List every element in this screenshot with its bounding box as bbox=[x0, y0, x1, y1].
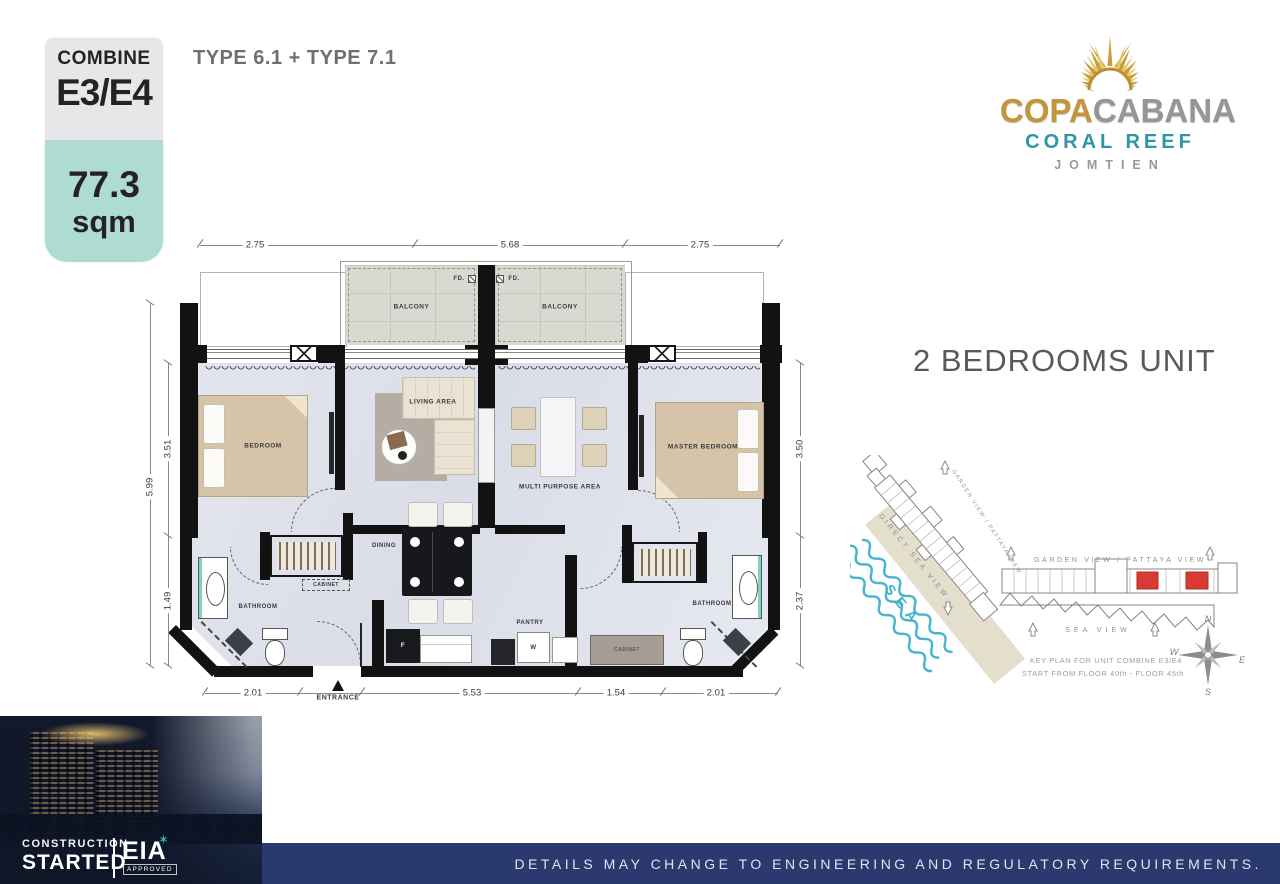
wall-bedroom-living bbox=[335, 363, 345, 490]
party-wall-lower bbox=[478, 483, 495, 528]
wall-left-lower bbox=[180, 538, 192, 630]
compass-n: N bbox=[1205, 614, 1212, 624]
balcony-right-label: BALCONY bbox=[542, 303, 578, 310]
dining-label: DINING bbox=[372, 543, 396, 549]
key-plan: SEA DIRECT SEA VIEW bbox=[850, 455, 1270, 705]
project-logo: COPACABANA CORAL REEF JOMTIEN bbox=[1000, 34, 1220, 172]
combine-label: COMBINE bbox=[45, 48, 163, 70]
wall-top-2 bbox=[318, 345, 345, 363]
party-wall-column bbox=[478, 408, 495, 483]
cabinet-right-box: CABINET bbox=[590, 635, 664, 665]
fd-left-label: FD. bbox=[453, 276, 464, 282]
toilet-tank-right bbox=[680, 628, 706, 640]
slider-multipurpose bbox=[495, 349, 625, 359]
fd-right-shaft bbox=[496, 275, 504, 283]
column-left bbox=[290, 345, 318, 362]
coffee-decor bbox=[398, 451, 407, 460]
vanity-right bbox=[732, 555, 762, 619]
dim-left-upper: 3.51 bbox=[163, 437, 174, 462]
building-photo: CONSTRUCTION STARTED EIA ✶ APPROVED bbox=[0, 716, 262, 884]
eia-star-icon: ✶ bbox=[158, 832, 169, 848]
dining-chair-3 bbox=[408, 599, 438, 624]
dining-table bbox=[402, 528, 472, 596]
party-wall-upper bbox=[478, 265, 495, 408]
wall-mpa-master bbox=[628, 363, 638, 490]
highlight-unit-e3 bbox=[1137, 572, 1158, 589]
wall-bottom-2 bbox=[361, 666, 743, 677]
cabinet-left-label: CABINET bbox=[313, 582, 339, 588]
living-area-label: LIVING AREA bbox=[409, 399, 456, 406]
wall-stub-right bbox=[762, 303, 780, 363]
dim-line-bottom bbox=[205, 693, 778, 694]
slider-living bbox=[345, 349, 478, 359]
floor-plan: BALCONY BALCONY FD. FD. bbox=[150, 225, 850, 725]
dim-line-left bbox=[168, 363, 169, 666]
sofa-chaise bbox=[434, 419, 475, 475]
wall-corridor-right bbox=[495, 525, 565, 534]
dining-chair-1 bbox=[408, 502, 438, 527]
dim-line-right bbox=[800, 363, 801, 666]
washer-label: W bbox=[530, 645, 536, 651]
cabinet-right-label: CABINET bbox=[614, 647, 640, 653]
mpa-chair-3 bbox=[582, 407, 607, 430]
wall-left-upper bbox=[180, 363, 198, 538]
unit-code: E3/E4 bbox=[45, 72, 163, 114]
brand-subtitle: CORAL REEF bbox=[1000, 131, 1220, 154]
dim-bottom-2: 5.53 bbox=[460, 688, 485, 699]
mpa-table bbox=[540, 397, 576, 477]
wall-wardrobe-left-b bbox=[343, 513, 353, 580]
wall-right-lower bbox=[768, 538, 780, 630]
wall-wardrobe-right-a bbox=[622, 525, 632, 583]
toilet-left bbox=[265, 640, 285, 666]
dim-bottom-1: 2.01 bbox=[241, 688, 266, 699]
fd-left-shaft bbox=[468, 275, 476, 283]
toilet-right bbox=[683, 640, 703, 666]
type-combination-title: TYPE 6.1 + TYPE 7.1 bbox=[193, 47, 396, 70]
keyplan-caption-1: KEY PLAN FOR UNIT COMBINE E3/E4 bbox=[1030, 656, 1182, 665]
counter-left bbox=[420, 635, 472, 663]
tv-panel-master bbox=[639, 415, 644, 477]
wall-kitchen-left bbox=[372, 600, 384, 666]
pantry-label: PANTRY bbox=[517, 620, 544, 626]
sea-shore-group: SEA DIRECT SEA VIEW bbox=[850, 500, 1025, 705]
unit-badge-top: COMBINE E3/E4 bbox=[45, 38, 163, 140]
roof-terrace-left bbox=[200, 272, 347, 347]
brand-name-gold: COPA bbox=[1000, 92, 1093, 129]
garden-view-horizontal-label: GARDEN VIEW / PATTAYA VIEW bbox=[1034, 557, 1206, 564]
dim-right-upper: 3.50 bbox=[795, 437, 806, 462]
bedroom-label: BEDROOM bbox=[244, 443, 281, 450]
window-bedroom bbox=[207, 349, 290, 359]
area-value: 77.3 bbox=[45, 164, 163, 206]
dining-chair-2 bbox=[443, 502, 473, 527]
sea-view-label: SEA VIEW bbox=[1065, 627, 1130, 634]
footer-divider bbox=[113, 838, 115, 878]
dim-top-1: 2.75 bbox=[243, 240, 268, 251]
multi-purpose-label: MULTI PURPOSE AREA bbox=[519, 484, 601, 491]
fd-right-label: FD. bbox=[508, 276, 519, 282]
bed-master bbox=[655, 402, 764, 499]
window-master bbox=[676, 349, 760, 359]
column-right bbox=[648, 345, 676, 362]
toilet-tank-left bbox=[262, 628, 288, 640]
vanity-left bbox=[198, 557, 228, 619]
sunburst-icon bbox=[1035, 34, 1185, 92]
counter-right bbox=[552, 637, 578, 663]
dim-top-3: 2.75 bbox=[688, 240, 713, 251]
keyplan-caption-2: START FROM FLOOR 40th - FLOOR 45th bbox=[1022, 669, 1184, 678]
dim-bottom-4: 2.01 bbox=[704, 688, 729, 699]
wardrobe-right bbox=[632, 542, 698, 583]
cabinet-left-box: CABINET bbox=[302, 579, 350, 591]
dim-right-lower: 2.37 bbox=[795, 589, 806, 614]
started-label: STARTED bbox=[22, 851, 127, 875]
approved-label: APPROVED bbox=[123, 864, 177, 875]
dim-bottom-3: 1.54 bbox=[604, 688, 629, 699]
dim-left-overall: 5.99 bbox=[145, 475, 156, 500]
mpa-chair-2 bbox=[511, 444, 536, 467]
wall-right-upper bbox=[762, 363, 780, 538]
balcony-left-label: BALCONY bbox=[394, 303, 430, 310]
highlight-unit-e4 bbox=[1186, 572, 1208, 589]
wall-top-3 bbox=[625, 345, 648, 363]
unit-badge: COMBINE E3/E4 77.3 sqm bbox=[45, 38, 163, 262]
area-unit: sqm bbox=[45, 204, 163, 240]
dim-left-lower: 1.49 bbox=[163, 589, 174, 614]
bathroom-left-label: BATHROOM bbox=[239, 604, 278, 610]
tv-panel-bedroom bbox=[329, 412, 334, 474]
crown-glow bbox=[40, 722, 150, 746]
entrance-label: ENTRANCE bbox=[317, 695, 360, 702]
compass-s: S bbox=[1205, 687, 1211, 697]
mpa-chair-4 bbox=[582, 444, 607, 467]
dim-top-2: 5.68 bbox=[498, 240, 523, 251]
wall-stub-left bbox=[180, 303, 198, 363]
entrance-door-leaf bbox=[360, 623, 362, 667]
bathroom-right-label: BATHROOM bbox=[693, 601, 732, 607]
dining-chair-4 bbox=[443, 599, 473, 624]
unit-type-title: 2 BEDROOMS UNIT bbox=[913, 343, 1213, 379]
wall-bottom-1 bbox=[214, 666, 313, 677]
brand-location: JOMTIEN bbox=[1000, 158, 1220, 172]
brand-name-silver: CABANA bbox=[1093, 92, 1236, 129]
building-wing-horizontal bbox=[1000, 559, 1237, 630]
wall-wardrobe-right-b bbox=[698, 532, 707, 583]
mpa-chair-1 bbox=[511, 407, 536, 430]
disclaimer-text: DETAILS MAY CHANGE TO ENGINEERING AND RE… bbox=[514, 856, 1262, 872]
roof-terrace-right bbox=[625, 272, 764, 347]
washer: W bbox=[517, 632, 550, 663]
pantry-appliance bbox=[491, 639, 515, 665]
entrance-arrow bbox=[332, 680, 344, 691]
fridge-label: F bbox=[401, 643, 405, 649]
wardrobe-left bbox=[270, 535, 343, 577]
compass-e: E bbox=[1239, 655, 1246, 665]
brand-name: COPACABANA bbox=[1000, 94, 1220, 127]
fridge: F bbox=[386, 629, 420, 663]
unit-badge-area: 77.3 sqm bbox=[45, 140, 163, 262]
brochure-page: COMBINE E3/E4 77.3 sqm TYPE 6.1 + TYPE 7… bbox=[0, 0, 1280, 884]
master-bedroom-label: MASTER BEDROOM bbox=[668, 444, 738, 451]
